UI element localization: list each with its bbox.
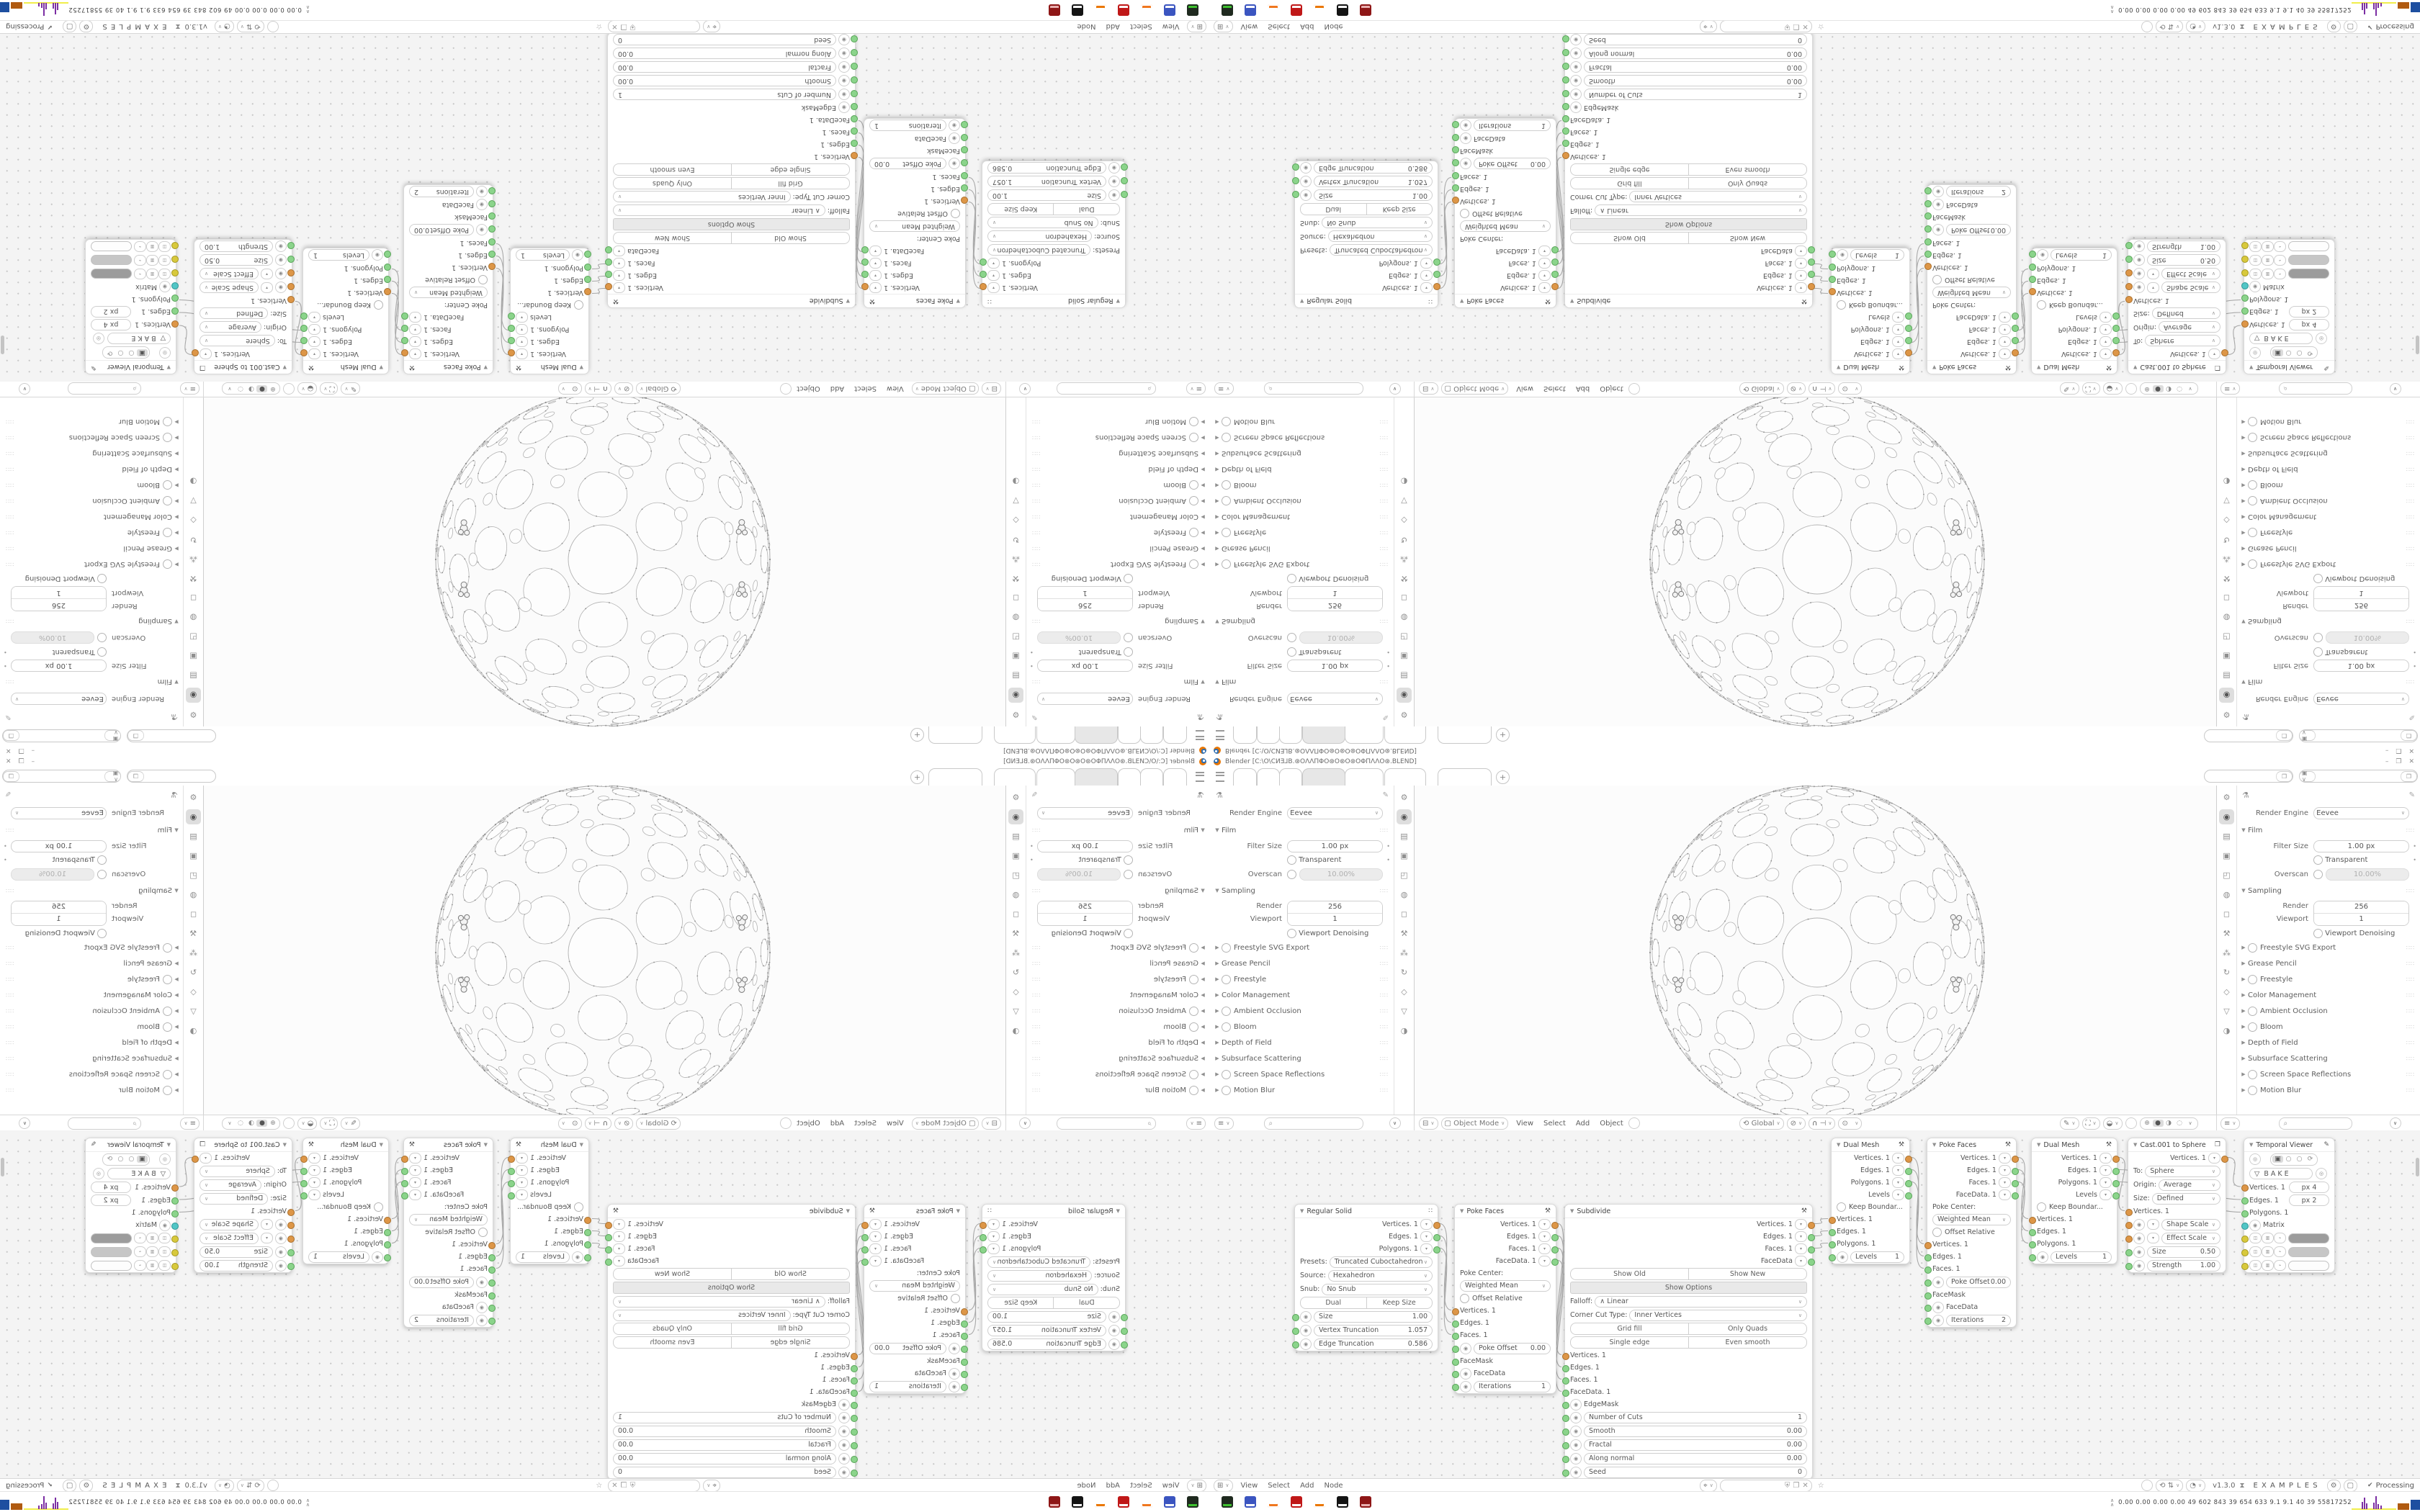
bar-icon-button[interactable]: ▥	[146, 1233, 158, 1243]
fractal-field[interactable]: Fractal0.00	[613, 1439, 836, 1451]
dropdown[interactable]: Hexahedron∨	[1328, 1270, 1433, 1282]
levels-field[interactable]: Levels1	[2051, 1251, 2112, 1263]
socket[interactable]	[2241, 256, 2249, 264]
search-input[interactable]: ⌕	[1264, 1117, 1363, 1130]
taskbar-app-red-badge-icon[interactable]	[1049, 1496, 1060, 1508]
socket[interactable]	[1452, 185, 1459, 192]
vertex-truncation-field[interactable]: Vertex Truncation1.057	[1314, 1325, 1433, 1336]
properties-tab-modifiers-icon[interactable]: ⚒	[186, 926, 201, 941]
sync-button[interactable]: ⟲ ⇅∨	[2156, 1480, 2183, 1492]
section-subsurface-scattering[interactable]: Subsurface Scattering	[1119, 450, 1198, 458]
dropdown[interactable]: ∧ Linear∨	[1595, 1296, 1807, 1308]
viewport-samples-field[interactable]: 1	[1038, 913, 1132, 925]
dropdown[interactable]: Defined∨	[2152, 1193, 2220, 1205]
socket[interactable]	[384, 1217, 391, 1224]
viewport-samples-field[interactable]: 1	[1038, 588, 1132, 600]
taskbar-app-vice-c64-floppy-icon[interactable]	[1164, 4, 1175, 16]
section-screen-space-reflections[interactable]: Screen Space Reflections	[69, 1071, 160, 1079]
smooth-field[interactable]: Smooth0.00	[1584, 76, 1807, 87]
menu-add[interactable]: Add	[1106, 1482, 1120, 1490]
socket[interactable]	[1562, 1470, 1569, 1477]
scene-selector[interactable]: ❐▣ ∨❐	[2, 729, 216, 742]
properties-tab-modifiers-icon[interactable]: ⚒	[2219, 926, 2234, 941]
clear-icon[interactable]: ✕	[611, 1482, 617, 1490]
socket[interactable]	[2221, 1156, 2228, 1163]
bar-icon-button[interactable]: ◫	[158, 1260, 171, 1271]
viewer-mode-1-button[interactable]: ○	[126, 1156, 137, 1163]
fractal-field[interactable]: Fractal0.00	[613, 62, 836, 73]
invoke-button[interactable]: ◉	[2133, 1219, 2145, 1230]
menu-node[interactable]: Node	[1077, 23, 1095, 31]
properties-tab-particles-icon[interactable]: ⁂	[186, 945, 201, 960]
dropdown[interactable]: Inner Vertices∨	[613, 1310, 791, 1321]
dropdown[interactable]: ∧ Linear∨	[1595, 205, 1807, 217]
properties-tab-output-icon[interactable]: ▤	[2219, 668, 2234, 683]
dropdown[interactable]: Inner Vertices∨	[1629, 192, 1807, 203]
section-grease-pencil[interactable]: Grease Pencil	[2248, 545, 2297, 553]
filter-size-field[interactable]: 1.00 px	[1037, 840, 1133, 852]
socket[interactable]	[980, 1234, 987, 1241]
socket[interactable]	[1292, 178, 1299, 185]
shading-mode-1-icon[interactable]: ●	[2153, 385, 2164, 392]
socket[interactable]	[1562, 63, 1569, 71]
socket[interactable]	[605, 1222, 612, 1229]
taskbar-app-vice-c64-floppy-icon[interactable]	[1245, 1496, 1256, 1508]
properties-tab-render-icon[interactable]: ◉	[186, 688, 201, 703]
socket[interactable]	[851, 1377, 858, 1385]
search-mode-dropdown[interactable]: ⌖∨	[703, 1480, 720, 1492]
section-bloom[interactable]: Bloom	[2260, 1023, 2283, 1031]
properties-tab-tool-icon[interactable]: ⚙	[186, 790, 201, 805]
filter-dropdown[interactable]: ∨	[1389, 383, 1401, 395]
section-grease-pencil[interactable]: Grease Pencil	[123, 960, 172, 968]
socket[interactable]	[1924, 1318, 1932, 1325]
invoke-button[interactable]: ◉	[476, 199, 488, 211]
value-bar[interactable]	[91, 269, 132, 279]
section-ambient-occlusion[interactable]: Ambient Occlusion	[92, 1007, 160, 1015]
properties-tab-particles-icon[interactable]: ⁂	[1397, 945, 1412, 960]
editor-type-button[interactable]: ≡∨	[1186, 1117, 1206, 1130]
section-grease-pencil[interactable]: Grease Pencil	[123, 545, 172, 553]
section-film[interactable]: Film	[158, 678, 172, 686]
section-ambient-occlusion[interactable]: Ambient Occlusion	[2260, 1007, 2328, 1015]
edge-truncation-field[interactable]: Edge Truncation0.586	[987, 163, 1106, 174]
bar-icon-button[interactable]: ⌁	[2274, 1233, 2286, 1243]
socket[interactable]	[1829, 1229, 1836, 1236]
menu-select[interactable]: Select	[1268, 23, 1290, 31]
button-grid-fill[interactable]: Grid fill	[1570, 177, 1689, 189]
socket[interactable]	[605, 259, 612, 266]
node-header-icon[interactable]: ✎	[91, 1141, 97, 1148]
socket[interactable]	[384, 1229, 391, 1236]
socket-menu-button[interactable]: ▾	[1795, 1243, 1807, 1254]
socket-menu-button[interactable]: ▾	[1892, 348, 1904, 359]
invoke-button[interactable]: ◉	[949, 133, 960, 145]
socket-menu-button[interactable]: ▾	[987, 1243, 1000, 1254]
socket[interactable]	[1551, 1259, 1559, 1266]
socket-menu-button[interactable]: ▾	[1999, 348, 2011, 359]
checkbox[interactable]	[163, 975, 172, 984]
invoke-button[interactable]: ◉	[1460, 120, 1471, 132]
socket[interactable]	[1551, 1234, 1559, 1241]
node-search-input[interactable]: ⛨ ❐ ✕	[1720, 21, 1812, 33]
invoke-button[interactable]: ◉	[1837, 250, 1848, 261]
value-bar[interactable]	[91, 1247, 132, 1257]
socket[interactable]	[1924, 264, 1932, 271]
overscan-field[interactable]: 10.00%	[2326, 868, 2409, 881]
scene-name-field[interactable]: ❐	[127, 770, 216, 783]
section-sampling[interactable]: Sampling	[1165, 887, 1198, 895]
properties-tab-modifiers-icon[interactable]: ⚒	[1008, 571, 1023, 586]
invoke-button[interactable]: ◉	[2133, 241, 2145, 253]
xray-toggle[interactable]	[284, 383, 295, 395]
pin-icon[interactable]: ✎	[5, 791, 11, 799]
button-show-new[interactable]: Show New	[1689, 1268, 1807, 1280]
socket[interactable]	[1452, 1320, 1459, 1328]
visibility-eye-button[interactable]: ◎	[159, 347, 171, 359]
invoke-button[interactable]: ◉	[1570, 1399, 1582, 1410]
socket-menu-button[interactable]: ▾	[1795, 258, 1807, 269]
button-dual[interactable]: Dual	[1300, 1297, 1367, 1309]
invoke-button[interactable]: ◉	[1932, 1302, 1944, 1313]
workspace-tab-2[interactable]	[1140, 726, 1163, 744]
bake-options-button[interactable]: ◎	[2316, 1168, 2327, 1179]
scene-selector[interactable]: ❐▣ ∨❐	[2, 770, 216, 783]
properties-tab-physics-icon[interactable]: ↻	[186, 965, 201, 980]
clear-icon[interactable]: ✕	[1802, 23, 1808, 31]
properties-tab-scene-icon[interactable]: ◰	[2219, 629, 2234, 644]
socket[interactable]	[1562, 77, 1569, 84]
checkbox[interactable]	[1222, 975, 1231, 984]
checkbox[interactable]	[2248, 1086, 2257, 1095]
workspace-tab-2[interactable]	[1257, 768, 1280, 786]
section-grease-pencil[interactable]: Grease Pencil	[2248, 960, 2297, 968]
socket[interactable]	[2241, 270, 2249, 277]
socket-menu-button[interactable]: ▾	[1892, 336, 1904, 347]
socket[interactable]	[1924, 1254, 1932, 1261]
properties-tab-scene-icon[interactable]: ◰	[1397, 868, 1412, 883]
node-header-icon[interactable]: ⚒	[1545, 1207, 1551, 1215]
levels-field[interactable]: Levels1	[1850, 1251, 1904, 1263]
size-field[interactable]: Size0.50	[2147, 1246, 2220, 1258]
properties-tab-render-icon[interactable]: ◉	[186, 809, 201, 824]
invoke-button[interactable]: ◉	[1570, 1426, 1582, 1437]
dropdown[interactable]: Defined∨	[2152, 308, 2220, 320]
section-color-management[interactable]: Color Management	[1222, 991, 1290, 999]
socket[interactable]	[584, 1229, 591, 1236]
socket[interactable]	[1292, 192, 1299, 199]
socket[interactable]	[1452, 147, 1459, 154]
invoke-button[interactable]: ◉	[1837, 1251, 1848, 1263]
button-show-new[interactable]: Show New	[1689, 232, 1807, 244]
size-field[interactable]: Size0.50	[200, 1246, 273, 1258]
socket[interactable]	[2241, 307, 2249, 315]
dropdown[interactable]: Average∨	[2159, 1179, 2220, 1191]
properties-tab-modifiers-icon[interactable]: ⚒	[186, 571, 201, 586]
shading-mode-2-icon[interactable]: ◑	[246, 385, 257, 392]
node-header-icon[interactable]: ⚒	[516, 364, 521, 371]
viewport-3d[interactable]	[1415, 786, 2216, 1115]
workspace-tab-1[interactable]	[1233, 768, 1257, 786]
bar-icon-button[interactable]: ◫	[158, 255, 171, 266]
viewer-mode-0-button[interactable]: ▣	[2272, 349, 2283, 356]
socket-menu-button[interactable]: ▾	[1892, 312, 1904, 323]
properties-tab-particles-icon[interactable]: ⁂	[2219, 552, 2234, 567]
socket[interactable]	[1829, 276, 1836, 284]
viewport-samples-field[interactable]: 1	[2314, 913, 2408, 925]
section-color-management[interactable]: Color Management	[104, 991, 172, 999]
bar-icon-button[interactable]: ⌁	[134, 241, 146, 252]
section-motion-blur[interactable]: Motion Blur	[119, 418, 160, 426]
menu-select[interactable]: Select	[1268, 1482, 1290, 1490]
socket[interactable]	[2241, 1210, 2249, 1218]
checkbox[interactable]	[1222, 418, 1231, 427]
section-grease-pencil[interactable]: Grease Pencil	[1149, 960, 1198, 968]
socket[interactable]	[171, 1249, 179, 1256]
socket[interactable]	[584, 1217, 591, 1224]
checkbox[interactable]	[574, 300, 583, 310]
scene-stats-button[interactable]: ◔∨	[215, 21, 234, 33]
socket[interactable]	[1452, 1346, 1459, 1353]
socket[interactable]	[1905, 1168, 1912, 1175]
scrollbar-nub[interactable]	[2416, 1158, 2419, 1176]
socket[interactable]	[171, 1236, 179, 1243]
shading-mode-1-icon[interactable]: ●	[257, 1120, 268, 1127]
snap-dropdown[interactable]: ∩ ⊣∨	[585, 1117, 611, 1130]
visibility-eye-button[interactable]: ◎	[159, 1153, 171, 1165]
socket[interactable]	[1829, 1254, 1836, 1261]
checkbox[interactable]	[1189, 1070, 1198, 1079]
restore-button[interactable]: ❐	[19, 758, 24, 765]
workspace-tab-3[interactable]	[1279, 768, 1302, 786]
doc-button[interactable]: ▢	[2344, 1480, 2357, 1492]
checkbox[interactable]	[2313, 855, 2323, 865]
socket[interactable]	[488, 1254, 496, 1261]
properties-tab-modifiers-icon[interactable]: ⚒	[1397, 571, 1412, 586]
section-screen-space-reflections[interactable]: Screen Space Reflections	[1095, 434, 1186, 442]
properties-tab-object-data-icon[interactable]: ▽	[1008, 1004, 1023, 1019]
section-grease-pencil[interactable]: Grease Pencil	[1222, 960, 1270, 968]
socket-menu-button[interactable]: ▾	[308, 312, 321, 323]
taskbar-app-firefox-icon[interactable]	[1141, 1496, 1152, 1508]
dropdown[interactable]: ∧ Linear∨	[613, 205, 825, 217]
editor-type-button[interactable]: ⊟∨	[1419, 1117, 1438, 1130]
socket[interactable]	[1562, 1415, 1569, 1422]
section-freestyle-svg-export[interactable]: Freestyle SVG Export	[1234, 944, 1309, 952]
px-size-field[interactable]: px 2	[2289, 1194, 2329, 1206]
node-editor[interactable]: ▼Regular Solid∷Vertices. 1 ▾Edges. 1 ▾Po…	[0, 1130, 1210, 1478]
socket-menu-button[interactable]: ▾	[2147, 1233, 2159, 1243]
invoke-button[interactable]: ◉	[1570, 1467, 1582, 1478]
filter-size-field[interactable]: 1.00 px	[2313, 660, 2409, 672]
properties-tab-modifiers-icon[interactable]: ⚒	[2219, 571, 2234, 586]
node-cast[interactable]: ▼Cast.001 to Sphere❐Vertices. 1 ▾To: Sph…	[194, 1138, 292, 1273]
socket[interactable]	[1452, 1333, 1459, 1340]
invoke-button[interactable]: ◉	[1570, 1412, 1582, 1423]
section-motion-blur[interactable]: Motion Blur	[1234, 1086, 1275, 1094]
socket[interactable]	[2125, 1249, 2133, 1256]
socket[interactable]	[861, 284, 869, 291]
filter-size-field[interactable]: 1.00 px	[11, 840, 107, 852]
section-color-management[interactable]: Color Management	[2248, 513, 2316, 521]
socket-menu-button[interactable]: ▾	[987, 270, 1000, 281]
properties-tab-object-data-icon[interactable]: ▽	[1397, 493, 1412, 508]
socket[interactable]	[1551, 1246, 1559, 1254]
button-single-edge[interactable]: Single edge	[1570, 163, 1689, 176]
socket[interactable]	[1808, 1222, 1815, 1229]
socket[interactable]	[584, 1254, 591, 1261]
shading-mode-3-icon[interactable]: ◌	[236, 385, 246, 392]
button-show-old[interactable]: Show Old	[1570, 232, 1689, 244]
section-freestyle-svg-export[interactable]: Freestyle SVG Export	[1111, 561, 1186, 569]
invoke-button[interactable]: ◉	[275, 1246, 287, 1258]
socket[interactable]	[1292, 1314, 1299, 1321]
node-pf1[interactable]: ▼Poke Faces⚒Vertices. 1 ▾Edges. 1 ▾Faces…	[864, 1204, 966, 1394]
poke-offset-field[interactable]: Poke Offset0.00	[1946, 1277, 2011, 1288]
socket-menu-button[interactable]: ▾	[1538, 1256, 1551, 1266]
invoke-button[interactable]: ◉	[159, 282, 171, 293]
socket[interactable]	[488, 1266, 496, 1274]
properties-tab-physics-icon[interactable]: ↻	[2219, 965, 2234, 980]
editor-type-button[interactable]: ≡∨	[2220, 383, 2240, 395]
invoke-button[interactable]: ◉	[949, 1368, 960, 1380]
checkbox[interactable]	[97, 575, 107, 584]
menu-node[interactable]: Node	[1324, 1482, 1343, 1490]
checkbox[interactable]	[1222, 560, 1231, 570]
socket[interactable]	[1433, 1222, 1440, 1229]
invoke-button[interactable]: ◉	[1300, 1338, 1312, 1350]
socket-menu-button[interactable]: ▾	[613, 246, 625, 256]
checkbox[interactable]	[1460, 209, 1469, 218]
invoke-button[interactable]: ◉	[1108, 1311, 1120, 1323]
snap-dropdown[interactable]: ∩ ⊣∨	[1809, 383, 1835, 395]
render-engine-dropdown[interactable]: Eevee∨	[1037, 693, 1133, 706]
overlay-dropdown-2[interactable]: ⛶∨	[320, 1117, 338, 1130]
socket[interactable]	[1452, 1359, 1459, 1366]
add-workspace-button[interactable]: +	[1496, 770, 1510, 784]
button-keep-size[interactable]: Keep Size	[987, 203, 1054, 215]
viewer-mode-3-button[interactable]: ⟳	[104, 349, 115, 356]
socket[interactable]	[851, 1470, 858, 1477]
properties-tab-particles-icon[interactable]: ⁂	[1008, 552, 1023, 567]
search-input[interactable]: ⌕	[68, 383, 141, 395]
node-pf1[interactable]: ▼Poke Faces⚒Vertices. 1 ▾Edges. 1 ▾Faces…	[1454, 1204, 1556, 1394]
bar-icon-button[interactable]: ▥	[2262, 1260, 2274, 1271]
menu-view[interactable]: View	[1162, 1482, 1180, 1490]
empty-toggle[interactable]	[780, 383, 792, 395]
section-bloom[interactable]: Bloom	[137, 482, 160, 490]
button-grid-fill[interactable]: Grid fill	[731, 1323, 850, 1335]
properties-tab-constraints-icon[interactable]: ◇	[1397, 984, 1412, 999]
button-dual[interactable]: Dual	[1054, 203, 1121, 215]
dropdown[interactable]: Shape Scale∨	[200, 282, 259, 294]
socket-menu-button[interactable]: ▾	[869, 1219, 882, 1230]
socket[interactable]	[1562, 140, 1569, 148]
button-single-edge[interactable]: Single edge	[731, 163, 850, 176]
node-rs[interactable]: ▼Regular Solid∷Vertices. 1 ▾Edges. 1 ▾Po…	[1294, 1204, 1438, 1351]
section-film[interactable]: Film	[1184, 678, 1198, 686]
socket[interactable]	[287, 1209, 295, 1216]
iterations-field[interactable]: Iterations1	[869, 1381, 946, 1392]
dropdown[interactable]: Effect Scale∨	[2161, 269, 2220, 280]
poke-offset-field[interactable]: Poke Offset0.00	[409, 225, 474, 236]
checkbox[interactable]	[1932, 275, 1942, 284]
bar-icon-button[interactable]: ⌁	[2274, 1260, 2286, 1271]
levels-field[interactable]: Levels1	[308, 1251, 369, 1263]
taskbar-app-emulator-green-icon[interactable]	[1222, 4, 1233, 16]
checkbox[interactable]	[2313, 648, 2323, 657]
filter-dropdown[interactable]: ∨	[2390, 1117, 2401, 1129]
overlay-dropdown-3[interactable]: ◒∨	[2103, 383, 2123, 395]
properties-tab-output-icon[interactable]: ▤	[186, 829, 201, 844]
dropdown[interactable]: No Snub∨	[1322, 1284, 1433, 1295]
socket[interactable]	[1829, 264, 1836, 271]
viewport-samples-field[interactable]: 1	[2314, 588, 2408, 600]
socket-menu-button[interactable]: ▾	[1795, 1219, 1807, 1230]
invoke-button[interactable]: ◉	[2133, 282, 2145, 294]
menu-add[interactable]: Add	[830, 385, 844, 393]
overlay-dropdown-3[interactable]: ◒∨	[2103, 1117, 2123, 1130]
taskbar-app-sm64-red-icon[interactable]	[1118, 1496, 1129, 1508]
taskbar-app-blender-icon[interactable]	[1314, 1496, 1325, 1508]
viewer-mode-2-button[interactable]: ○	[2294, 349, 2305, 356]
socket[interactable]	[508, 1156, 515, 1163]
section-motion-blur[interactable]: Motion Blur	[1145, 1086, 1186, 1094]
invoke-button[interactable]: ◉	[572, 1251, 583, 1263]
socket[interactable]	[1562, 104, 1569, 111]
checkbox[interactable]	[2037, 1202, 2046, 1212]
workspace-tab-5[interactable]	[1036, 768, 1075, 786]
button-dual[interactable]: Dual	[1054, 1297, 1121, 1309]
socket-menu-button[interactable]: ▾	[869, 1231, 882, 1242]
socket-menu-button[interactable]: ▾	[2099, 336, 2112, 347]
viewer-mode-2-button[interactable]: ○	[115, 349, 126, 356]
bar-icon-button[interactable]: ◫	[158, 241, 171, 252]
section-freestyle[interactable]: Freestyle	[1234, 529, 1266, 537]
invoke-button[interactable]: ◉	[838, 1439, 850, 1451]
section-film[interactable]: Film	[1184, 827, 1198, 834]
checkbox[interactable]	[1222, 1022, 1231, 1032]
overscan-toggle[interactable]	[97, 870, 107, 879]
workspace-tab-1[interactable]	[1163, 768, 1187, 786]
properties-tab-modifiers-icon[interactable]: ⚒	[1397, 926, 1412, 941]
socket[interactable]	[2125, 297, 2133, 304]
socket[interactable]	[2029, 264, 2036, 271]
bake-button[interactable]: ▽ B A K E	[107, 333, 171, 344]
section-screen-space-reflections[interactable]: Screen Space Reflections	[2260, 434, 2351, 442]
node-dm1[interactable]: ▼Dual Mesh⚒Vertices. 1 ▾Edges. 1 ▾Polygo…	[1831, 1138, 1910, 1264]
menu-burger-icon[interactable]	[1196, 772, 1204, 782]
xray-toggle[interactable]	[2125, 383, 2137, 395]
bar-icon-button[interactable]: ▥	[2262, 255, 2274, 266]
scene-selector[interactable]: ❐▣ ∨❐	[2204, 729, 2418, 742]
node-header-icon[interactable]: ⚒	[308, 364, 314, 371]
taskbar-app-blender-icon[interactable]	[1095, 4, 1106, 16]
checkbox[interactable]	[1189, 1022, 1198, 1032]
button-show-new[interactable]: Show New	[613, 1268, 731, 1280]
socket-menu-button[interactable]: ▾	[409, 336, 421, 347]
size-field[interactable]: Size0.50	[200, 255, 273, 266]
mode-dropdown[interactable]: ▢ Object Mode∨	[912, 383, 980, 395]
menu-burger-icon[interactable]	[1196, 730, 1204, 740]
properties-tab-output-icon[interactable]: ▤	[186, 668, 201, 683]
socket[interactable]	[961, 1320, 968, 1328]
number-of-cuts-field[interactable]: Number of Cuts1	[613, 1412, 836, 1423]
checkbox[interactable]	[1222, 433, 1231, 443]
dropdown[interactable]: Shape Scale∨	[2161, 282, 2220, 294]
taskbar-app-sm64-red-icon[interactable]	[1291, 4, 1302, 16]
checkbox[interactable]	[1124, 929, 1133, 938]
